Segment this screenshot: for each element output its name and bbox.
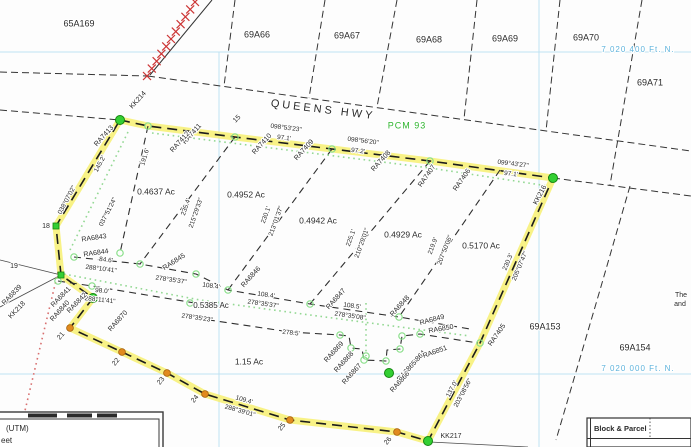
labels-layer: 65A16969A6669A6769A6869A6969A7069A7169A1… [1, 18, 687, 446]
map-label: 22 [111, 357, 121, 368]
map-label: 037°51'24" [97, 195, 119, 227]
subdivision-layer [56, 120, 553, 441]
map-label: 235.4' [180, 198, 192, 217]
map-label: 15 [232, 114, 243, 125]
block-69a68-69-line [464, 0, 477, 119]
control-point-marker [549, 174, 558, 183]
map-label: 278°35'37" [155, 274, 188, 286]
map-label: 288°10'41" [85, 263, 118, 275]
map-label: 84.6' [99, 256, 114, 265]
map-label: 108.4' [202, 282, 220, 291]
map-label: RA6845 [162, 252, 187, 272]
map-label: 230.1' [260, 206, 273, 225]
boundary-point-marker [53, 223, 59, 229]
map-label: 69A71 [637, 77, 663, 87]
boundary-point-marker [58, 272, 64, 278]
scale-bar-units-label: (UTM) [6, 424, 29, 433]
road-edge-east-of-kk216 [553, 178, 691, 196]
map-label: 18 [42, 223, 50, 230]
map-label: 26 [383, 436, 393, 447]
map-label: RA6870 [107, 309, 129, 333]
map-label: 69A68 [416, 34, 442, 44]
map-label: KK214 [129, 90, 148, 110]
traverse-point-marker [202, 391, 209, 398]
subdivision-boundary [56, 120, 553, 441]
map-label: QUEENS HWY [270, 98, 376, 123]
map-label: 25 [277, 422, 287, 433]
map-label: 7 020 400 Ft. N. [601, 45, 674, 54]
map-label: 0.4637 Ac [137, 186, 176, 196]
parcel-map-canvas[interactable]: 65A16969A6669A6769A6869A6969A7069A7169A1… [0, 0, 691, 447]
block-69a153-154-line [556, 186, 630, 440]
map-label: 69A70 [573, 32, 599, 42]
block-69a67-68-line [377, 0, 397, 107]
map-label: and [674, 301, 686, 308]
map-label: RA6843 [81, 233, 107, 243]
tie-line-kk217 [430, 442, 528, 447]
map-label: 97.1' [504, 170, 519, 179]
map-label: 0.4952 Ac [227, 189, 266, 199]
map-label: 19 [10, 263, 18, 270]
map-label: The [675, 292, 687, 299]
map-label: 0.5385 Ac [193, 301, 229, 310]
map-label: 191.6' [139, 148, 151, 167]
map-label: 24 [190, 394, 200, 405]
map-label: 69A67 [334, 30, 360, 40]
map-label: PCM 93 [388, 120, 427, 130]
traverse-point-marker [67, 325, 74, 332]
scale-bar: (UTM) eet [0, 412, 163, 447]
control-point-marker [385, 369, 394, 378]
map-label: 207°50'06" [435, 233, 454, 266]
traverse-point-marker [287, 417, 294, 424]
map-label: RA6851 [422, 345, 448, 360]
map-label: 108.4' [257, 291, 275, 300]
queens-hwy-south-edge-west [0, 110, 120, 120]
map-label: 098°56'20" [347, 135, 380, 147]
railway-layer [143, 0, 212, 80]
map-label: 278.5' [282, 329, 300, 338]
block-parcel-table: Block & Parcel [587, 418, 691, 447]
block-69a69-70-line [546, 0, 560, 131]
map-label: 69A154 [619, 342, 650, 352]
setback-dotted-layer [18, 132, 548, 440]
map-label: 0.4929 Ac [384, 229, 423, 239]
map-label: KK218 [7, 300, 27, 320]
scale-bar-feet-label: eet [1, 436, 13, 445]
map-label: 278°35'23" [181, 312, 214, 324]
block-65a169-69a66-line [224, 0, 235, 86]
map-label: 0.4942 Ac [299, 215, 338, 225]
map-label: 7 020 000 Ft. N. [601, 364, 674, 373]
map-label: 219.9' [427, 237, 440, 256]
control-point-marker [116, 116, 125, 125]
parcel-map-viewport[interactable]: 65A16969A6669A6769A6869A6969A7069A7169A1… [0, 0, 691, 447]
block-parcel-header: Block & Parcel [594, 424, 647, 433]
map-label: 98.0' [95, 287, 110, 295]
map-label: 225.1' [345, 229, 358, 248]
map-label: 1.15 Ac [235, 356, 264, 366]
lot-corner-marker [117, 250, 123, 256]
map-label: 69A153 [529, 321, 560, 331]
map-label: RA7406 [452, 168, 472, 193]
map-label: 098°53'23" [270, 122, 303, 134]
map-label: 278°35'37" [247, 298, 280, 310]
control-point-marker [424, 437, 433, 446]
block-69a70-71-line [610, 0, 642, 185]
map-label: KK217 [440, 433, 461, 440]
queens-hwy-north-edge-west [0, 72, 148, 76]
traverse-point-marker [394, 429, 401, 436]
block-69a66-67-line [309, 0, 325, 98]
map-label: 21 [56, 331, 66, 342]
map-label: 0.5170 Ac [462, 240, 501, 250]
map-label: 23 [156, 376, 166, 387]
traverse-point-marker [119, 349, 126, 356]
map-label: 69A69 [492, 33, 518, 43]
map-label: 65A169 [63, 18, 94, 28]
map-label: 69A66 [244, 29, 270, 39]
traverse-point-marker [164, 370, 171, 377]
